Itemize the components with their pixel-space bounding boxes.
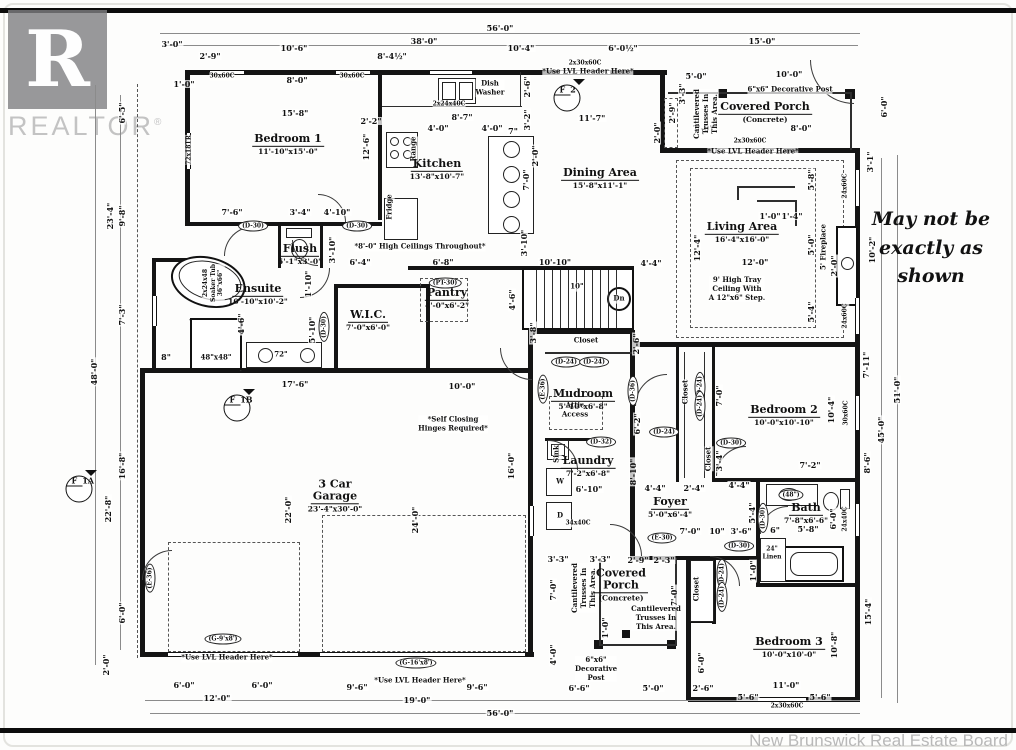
door-size-tag: (D-24)	[695, 391, 706, 421]
dimension-label: 6'-5"	[118, 101, 126, 124]
annotation: 48"x48"	[201, 354, 232, 363]
dimension-label: 2'-0"	[653, 121, 661, 144]
dimension-label: 3'-4"	[288, 208, 311, 216]
dimension-label: 3'-0"	[160, 40, 183, 48]
annotation: Dn	[613, 295, 624, 304]
fixture	[790, 552, 838, 576]
dimension-label: 16'-8"	[118, 452, 126, 481]
dimension-label: 2'-9"	[668, 101, 676, 124]
line	[592, 270, 593, 328]
dimension-label: 51'-0"	[893, 376, 901, 405]
door-size-tag: (E-30)	[647, 533, 676, 544]
annotation: 2x30x60C	[771, 702, 804, 710]
room-size: 23'-4"x30'-0"	[308, 505, 362, 513]
room-label: Flush5'-1"x3'-0"	[278, 238, 322, 266]
fixture	[286, 228, 312, 238]
room-label: Bath7'-8"x6'-6"	[784, 497, 828, 525]
dimension-label: 4'-6"	[237, 312, 245, 335]
dimension-label: 12'-0"	[203, 694, 232, 702]
dimension-label: 4'-0"	[426, 124, 449, 132]
line	[520, 72, 521, 107]
room-size: 7'-8"x6'-6"	[784, 517, 828, 525]
line	[576, 270, 577, 328]
dimension-label: 7'-0"	[522, 168, 530, 191]
wall	[528, 330, 635, 334]
dimension-label: 7'-0"	[678, 527, 701, 535]
dashed-line	[137, 84, 138, 658]
annotation: *Use LVL Header Here*	[374, 677, 465, 686]
dimension-label: 2'-0"	[531, 144, 539, 167]
annotation: 6"x6" Decorative Post	[575, 656, 617, 682]
annotation: 72x18TR	[185, 135, 193, 165]
room-name: W.I.C.	[348, 309, 388, 323]
dimension-label: 38'-0"	[410, 37, 439, 45]
dimension-label: 3'-3"	[588, 555, 611, 563]
dimension-label: 10'-4"	[827, 396, 835, 425]
room-label: Kitchen13'-8"x10'-7"	[410, 153, 464, 181]
disclaimer-note: May not be exactly as shown	[858, 205, 1004, 291]
room-size: 7'-0"x6'-0"	[346, 324, 390, 332]
dimension-label: 5'-6"	[808, 693, 831, 701]
dimension-label: 3'-2"	[523, 108, 531, 131]
room-name: Bedroom 1	[252, 133, 324, 147]
room-label: Foyer5'-0"x6'-4"	[648, 491, 692, 519]
annotation: 2x24x48 Soaker Tub 36"x66"	[202, 264, 225, 302]
door-size-tag: (D-36)	[628, 376, 639, 406]
door-size-tag: (D-30)	[758, 503, 769, 533]
dimension-label: 1'-10"	[304, 270, 312, 299]
window	[855, 504, 860, 536]
dimension-label: 15'-0"	[748, 37, 777, 45]
dimension-label: 7'-6"	[220, 208, 243, 216]
annotation: *8'-0" High Ceilings Throughout*	[355, 243, 486, 252]
annotation: *Use LVL Header Here*	[707, 148, 798, 157]
dimension-label: 2'-0"	[102, 653, 110, 676]
room-label: Bedroom 111'-10"x15'-0"	[252, 128, 324, 156]
dimension-label: 3'-10"	[328, 236, 336, 265]
window	[152, 296, 157, 326]
door-arc	[500, 348, 532, 380]
annotation: 2x24x40C	[433, 100, 466, 108]
window	[320, 652, 525, 657]
annotation: *Self Closing Hinges Required*	[418, 415, 488, 433]
footer-credit: New Brunswick Real Estate Board	[749, 731, 1008, 750]
dimension-label: 6'-10"	[575, 485, 604, 493]
line	[544, 270, 545, 328]
room-size: 15'-8"x11'-1"	[561, 182, 639, 190]
dimension-label: 7'-11"	[862, 351, 870, 380]
dimension-label: 56'-0"	[486, 709, 515, 717]
dimension-label: 4'-0"	[480, 124, 503, 132]
dimension-label: 4'-10"	[323, 208, 352, 216]
dimension-label: 5'-8"	[796, 525, 819, 533]
dimension-label: 7"	[507, 127, 519, 135]
annotation: Closet	[574, 337, 599, 346]
dimension-label: 1'-0"	[749, 559, 757, 582]
line	[560, 270, 561, 328]
dimension-label: 2'-9"	[198, 52, 221, 60]
annotation: 30x60C	[339, 72, 364, 80]
dimension-label: 4'-4"	[639, 259, 662, 267]
annotation: 2x30x60C	[734, 137, 767, 145]
dimension-label: 9'-6"	[345, 683, 368, 691]
fixture	[841, 257, 854, 270]
line	[536, 270, 537, 328]
dimension-label: 11'-7"	[578, 114, 607, 122]
dimension-label: 7'-3"	[118, 303, 126, 326]
room-size: (Concrete)	[718, 116, 812, 124]
dimension-label: 15'-8"	[281, 109, 310, 117]
room-label: 3 Car Garage23'-4"x30'-0"	[308, 478, 362, 513]
wall	[140, 368, 145, 657]
fixture	[390, 150, 399, 159]
dimension-label: 1'-0"	[601, 616, 609, 639]
door-size-tag: (G-16'x8')	[395, 658, 436, 669]
wall	[756, 583, 860, 587]
window	[529, 506, 534, 536]
annotation: *Use LVL Header Here*	[181, 654, 272, 663]
wall	[334, 284, 430, 288]
realtor-watermark: R REALTOR®	[8, 10, 164, 142]
dimension-label: 5'-0"	[641, 684, 664, 692]
annotation: 30x60C	[209, 72, 234, 80]
dimension-label: 6'-8"	[431, 258, 454, 266]
dimension-label: 56'-0"	[486, 24, 515, 32]
dimension-label: 8'-7"	[450, 113, 473, 121]
room-size: 4'-0"x6'-2"	[425, 302, 469, 310]
room-name: Ensuite	[233, 283, 284, 297]
door-size-tag: (D-24)	[717, 582, 728, 612]
room-label: Living Area16'-4"x16'-0"	[705, 216, 779, 244]
dimension-label: 2'-3"	[652, 556, 675, 564]
dimension-label: 3'-4"	[715, 449, 723, 472]
fixture	[503, 216, 520, 233]
room-label: Laundry7'-2"x6'-8"	[561, 450, 616, 478]
annotation: 24" Linen	[762, 546, 781, 561]
room-name: Bath	[789, 502, 823, 516]
realtor-logo-icon: R	[8, 10, 107, 109]
marker-letter: F	[67, 476, 83, 487]
dimension-label: 23'-4"	[106, 202, 114, 231]
dimension-label: 3'-8"	[529, 321, 537, 344]
room-size: 5'-1"x3'-0"	[278, 258, 322, 266]
room-size: 13'-8"x10'-7"	[410, 173, 464, 181]
dimension-label: 6'-0"	[697, 651, 705, 674]
door-arc	[810, 60, 854, 104]
marker-letter: F	[225, 395, 241, 406]
room-label: Covered Porch(Concrete)	[594, 567, 648, 602]
room-name: Laundry	[561, 455, 616, 469]
door-size-tag: (D-24)	[551, 357, 581, 368]
fixture	[503, 191, 520, 208]
dimension-label: 2'-6"	[523, 75, 531, 98]
annotation: 10"	[570, 283, 583, 292]
annotation: 72"	[274, 351, 287, 360]
line	[584, 270, 585, 328]
fixture	[503, 141, 520, 158]
fixture	[459, 82, 473, 100]
door-size-tag: (PT-30)	[429, 278, 462, 289]
dimension-label: 2'-2"	[359, 117, 382, 125]
line	[608, 270, 609, 328]
room-size: 10'-0"x10'-10"	[748, 419, 820, 427]
dimension-label: 5'-0"	[807, 233, 815, 256]
dimension-label: 6'-0"	[880, 95, 888, 118]
dimension-label: 5'-0"	[684, 72, 707, 80]
window	[855, 170, 860, 206]
door-size-tag: (G-9'x8')	[204, 634, 241, 645]
room-name: Flush	[281, 243, 319, 257]
dimension-line	[120, 95, 121, 650]
door-size-tag: (E-36)	[145, 563, 156, 592]
dimension-label: 2'-6"	[691, 684, 714, 692]
dimension-label: 12'-6"	[362, 133, 370, 162]
dimension-label: 12'-4"	[693, 234, 701, 263]
door-arc	[610, 524, 642, 556]
dimension-label: 6'-0"	[118, 601, 126, 624]
dimension-label: 3'-6"	[729, 527, 752, 535]
dimension-label: 11'-0"	[772, 681, 801, 689]
dimension-label: 10'-0"	[775, 70, 804, 78]
door-size-tag: (E-36)	[538, 374, 549, 403]
dimension-label: 5'-10"	[308, 316, 316, 345]
door-size-tag: (D-30)	[724, 541, 754, 552]
annotation: 34x40C	[565, 519, 590, 527]
fixture	[442, 82, 456, 100]
dashed-line	[322, 515, 526, 652]
dimension-label: 17'-6"	[281, 380, 310, 388]
dimension-label: 4'-0"	[549, 643, 557, 666]
room-name: Bedroom 2	[748, 404, 820, 418]
wall	[378, 70, 382, 220]
room-label: Mudroom5'-10"x6'-8"	[551, 383, 615, 411]
marker-flag-icon	[85, 470, 97, 482]
fixture	[390, 137, 399, 146]
annotation: Closet	[693, 577, 702, 602]
dimension-label: 6'-0"	[250, 681, 273, 689]
dimension-label: 8'-4½"	[376, 52, 407, 60]
dimension-label: 6'-0"	[829, 507, 837, 530]
realtor-wordmark: REALTOR®	[8, 111, 164, 142]
room-name: Mudroom	[551, 388, 615, 402]
dimension-label: 6'-0"	[172, 681, 195, 689]
dimension-label: 8'-10"	[629, 458, 637, 487]
room-size: 10'-0"x10'-0"	[753, 651, 825, 659]
floor-plan-sheet: R REALTOR® May not be exactly as shown N…	[0, 0, 1016, 750]
dimension-label: 9'-8"	[118, 204, 126, 227]
room-size: 11'-10"x15'-0"	[252, 148, 324, 156]
room-label: Dining Area15'-8"x11'-1"	[561, 162, 639, 190]
dimension-label: 24'-0"	[411, 506, 419, 535]
room-size: 10'-10"x10'-2"	[228, 298, 288, 306]
dimension-label: 6'-4"	[348, 258, 371, 266]
dimension-label: 8'-6"	[863, 451, 871, 474]
annotation: Cantilevered Trusses In This Area.	[631, 605, 681, 631]
room-name: Living Area	[705, 221, 779, 235]
dimension-label: 10'-6"	[280, 44, 309, 52]
annotation: Dish Washer	[476, 79, 505, 97]
door-size-tag: (D-24)	[649, 427, 679, 438]
wall	[622, 630, 630, 638]
dimension-label: 45'-0"	[877, 416, 885, 445]
wall	[334, 284, 338, 370]
dimension-label: 16'-0"	[507, 452, 515, 481]
window	[758, 697, 806, 702]
room-name: Kitchen	[411, 158, 464, 172]
fixture	[258, 348, 273, 363]
room-name: Pantry	[425, 287, 469, 301]
wall	[676, 346, 679, 482]
wall	[633, 342, 860, 347]
room-name: Foyer	[651, 496, 689, 510]
dimension-label: 8"	[160, 353, 172, 361]
dimension-label: 3'-3"	[546, 555, 569, 563]
fixture	[503, 166, 520, 183]
dimension-label: 3'-1"	[866, 150, 874, 173]
annotation: Closet	[682, 380, 691, 405]
annotation: 5' Fireplace	[820, 224, 829, 270]
door-size-tag: (D-30)	[716, 438, 746, 449]
line	[568, 270, 569, 328]
dimension-label: 48'-0"	[90, 358, 98, 387]
fixture	[300, 348, 315, 363]
room-label: Ensuite10'-10"x10'-2"	[228, 278, 288, 306]
door-size-tag: (D-24)	[579, 357, 609, 368]
room-name: Dining Area	[561, 167, 639, 181]
dimension-label: 12'-0"	[741, 258, 770, 266]
door-size-tag: (48")	[778, 490, 803, 501]
room-size: 5'-10"x6'-8"	[551, 403, 615, 411]
window	[855, 298, 860, 334]
annotation: 24x40C	[841, 506, 849, 531]
dimension-label: 22'-8"	[104, 495, 112, 524]
dimension-label: 2'-9"	[626, 556, 649, 564]
dimension-label: 9'-6"	[465, 683, 488, 691]
room-size: (Concrete)	[594, 594, 648, 602]
dimension-label: 5'-4"	[807, 300, 815, 323]
window	[430, 70, 472, 75]
dimension-label: 6'-6"	[567, 684, 590, 692]
dimension-label: 5'-6"	[736, 693, 759, 701]
door-size-tag: (D-30)	[342, 221, 372, 232]
dimension-label: 2'-0"	[830, 254, 838, 277]
dimension-label: 3'-10"	[520, 229, 528, 258]
realtor-logo-letter: R	[25, 21, 90, 99]
annotation: 24x60C	[841, 173, 849, 198]
annotation: Cantilevered Trusses In This Area.	[693, 89, 719, 139]
marker-letter: F	[555, 85, 571, 96]
dimension-label: 7'-2"	[798, 461, 821, 469]
dimension-label: 10'-8"	[830, 631, 838, 660]
dimension-label: 2'-6"	[632, 332, 640, 355]
wall	[630, 330, 635, 558]
door-size-tag: (D-30)	[319, 312, 330, 342]
dimension-label: 1'-4"	[780, 212, 803, 220]
dimension-label: 8'-0"	[285, 76, 308, 84]
dimension-label: 22'-0"	[284, 496, 292, 525]
room-name: Covered Porch	[594, 567, 648, 593]
dimension-label: 5'-4"	[748, 501, 756, 524]
room-label: W.I.C.7'-0"x6'-0"	[346, 304, 390, 332]
dimension-label: 19'-0"	[403, 696, 432, 704]
dimension-label: 6'-2"	[633, 412, 641, 435]
line	[545, 352, 633, 354]
dimension-label: 7'-0"	[715, 384, 723, 407]
annotation: 6"x6" Decorative Post	[747, 86, 832, 95]
room-name: 3 Car Garage	[311, 478, 359, 504]
dimension-label: 6'-0½"	[607, 44, 638, 52]
dimension-label: 10'-10"	[538, 258, 572, 266]
room-size: 5'-0"x6'-4"	[648, 511, 692, 519]
room-label: Covered Porch(Concrete)	[718, 96, 812, 124]
room-size: 16'-4"x16'-0"	[705, 236, 779, 244]
line	[552, 270, 553, 328]
dimension-label: 1'-0"	[172, 80, 195, 88]
marker-flag-icon	[243, 389, 255, 401]
annotation: W	[556, 478, 564, 487]
line	[599, 644, 677, 646]
dimension-label: 6"	[769, 526, 781, 534]
dimension-label: 4'-6"	[508, 288, 516, 311]
line	[600, 270, 601, 328]
door-size-tag: (D-30)	[238, 221, 268, 232]
door-arc	[635, 374, 667, 406]
dimension-label: 15'-4"	[864, 598, 872, 627]
room-size: 7'-2"x6'-8"	[561, 470, 616, 478]
annotation: 24x60C	[841, 303, 849, 328]
dimension-label: 8'-0"	[789, 124, 812, 132]
room-label: Bedroom 210'-0"x10'-10"	[748, 399, 820, 427]
door-size-tag: (D-32)	[586, 437, 616, 448]
annotation: 2x30x60C	[569, 59, 602, 67]
room-label: Bedroom 310'-0"x10'-0"	[753, 631, 825, 659]
room-name: Bedroom 3	[753, 636, 825, 650]
marker-flag-icon	[573, 79, 585, 91]
annotation: Closet	[705, 447, 714, 472]
dimension-label: 10'-0"	[448, 382, 477, 390]
dimension-label: 5'-8"	[807, 168, 815, 191]
window	[855, 396, 860, 430]
dimension-label: 4'-4"	[727, 481, 750, 489]
annotation: 30x60C	[842, 400, 850, 425]
dimension-label: 7'-0"	[549, 578, 557, 601]
annotation: D	[557, 512, 563, 521]
line	[684, 352, 685, 478]
dimension-label: 10"	[708, 527, 725, 535]
annotation: *Use LVL Header Here*	[542, 68, 633, 77]
dimension-label: 10'-4"	[507, 44, 536, 52]
annotation: Fridge	[386, 194, 395, 219]
room-name: Covered Porch	[718, 101, 812, 115]
annotation: 9' High Tray Ceiling With A 12"x6" Step.	[709, 276, 765, 302]
dimension-line	[160, 33, 860, 34]
dimension-label: 3'-3"	[678, 82, 686, 105]
